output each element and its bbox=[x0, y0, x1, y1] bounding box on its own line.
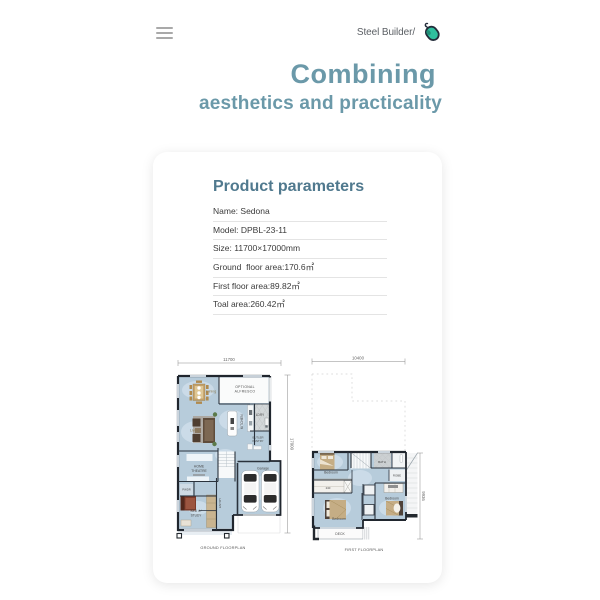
svg-text:Garage: Garage bbox=[257, 467, 269, 471]
svg-text:Bedroom: Bedroom bbox=[324, 471, 338, 475]
svg-text:9936: 9936 bbox=[421, 491, 426, 501]
svg-text:BATH: BATH bbox=[378, 460, 386, 464]
svg-text:KITCHEN: KITCHEN bbox=[240, 414, 244, 429]
svg-text:FIRST FLOORPLAN: FIRST FLOORPLAN bbox=[345, 547, 384, 552]
svg-text:Bedroom: Bedroom bbox=[332, 517, 346, 521]
svg-text:PWDR: PWDR bbox=[182, 488, 191, 492]
svg-text:240: 240 bbox=[326, 486, 331, 490]
svg-text:OPTIONAL: OPTIONAL bbox=[235, 385, 255, 389]
svg-text:HOME: HOME bbox=[194, 465, 205, 469]
svg-text:DECK: DECK bbox=[335, 532, 345, 536]
svg-text:GROUND FLOORPLAN: GROUND FLOORPLAN bbox=[200, 545, 245, 550]
svg-text:Dining: Dining bbox=[206, 390, 216, 394]
svg-text:ENTRY: ENTRY bbox=[218, 498, 222, 508]
svg-text:Bedroom: Bedroom bbox=[385, 497, 399, 501]
svg-text:LDRY: LDRY bbox=[256, 413, 265, 417]
svg-text:ALFRESCO: ALFRESCO bbox=[235, 390, 256, 394]
svg-text:17000: 17000 bbox=[290, 438, 295, 451]
svg-text:ROBE: ROBE bbox=[393, 474, 401, 478]
svg-text:STUDY: STUDY bbox=[191, 514, 203, 518]
svg-text:10400: 10400 bbox=[352, 356, 365, 361]
svg-text:BED 4 /: BED 4 / bbox=[191, 509, 202, 513]
svg-text:11700: 11700 bbox=[223, 357, 235, 362]
svg-text:Living: Living bbox=[190, 429, 199, 433]
svg-text:THEATRE: THEATRE bbox=[191, 469, 207, 473]
